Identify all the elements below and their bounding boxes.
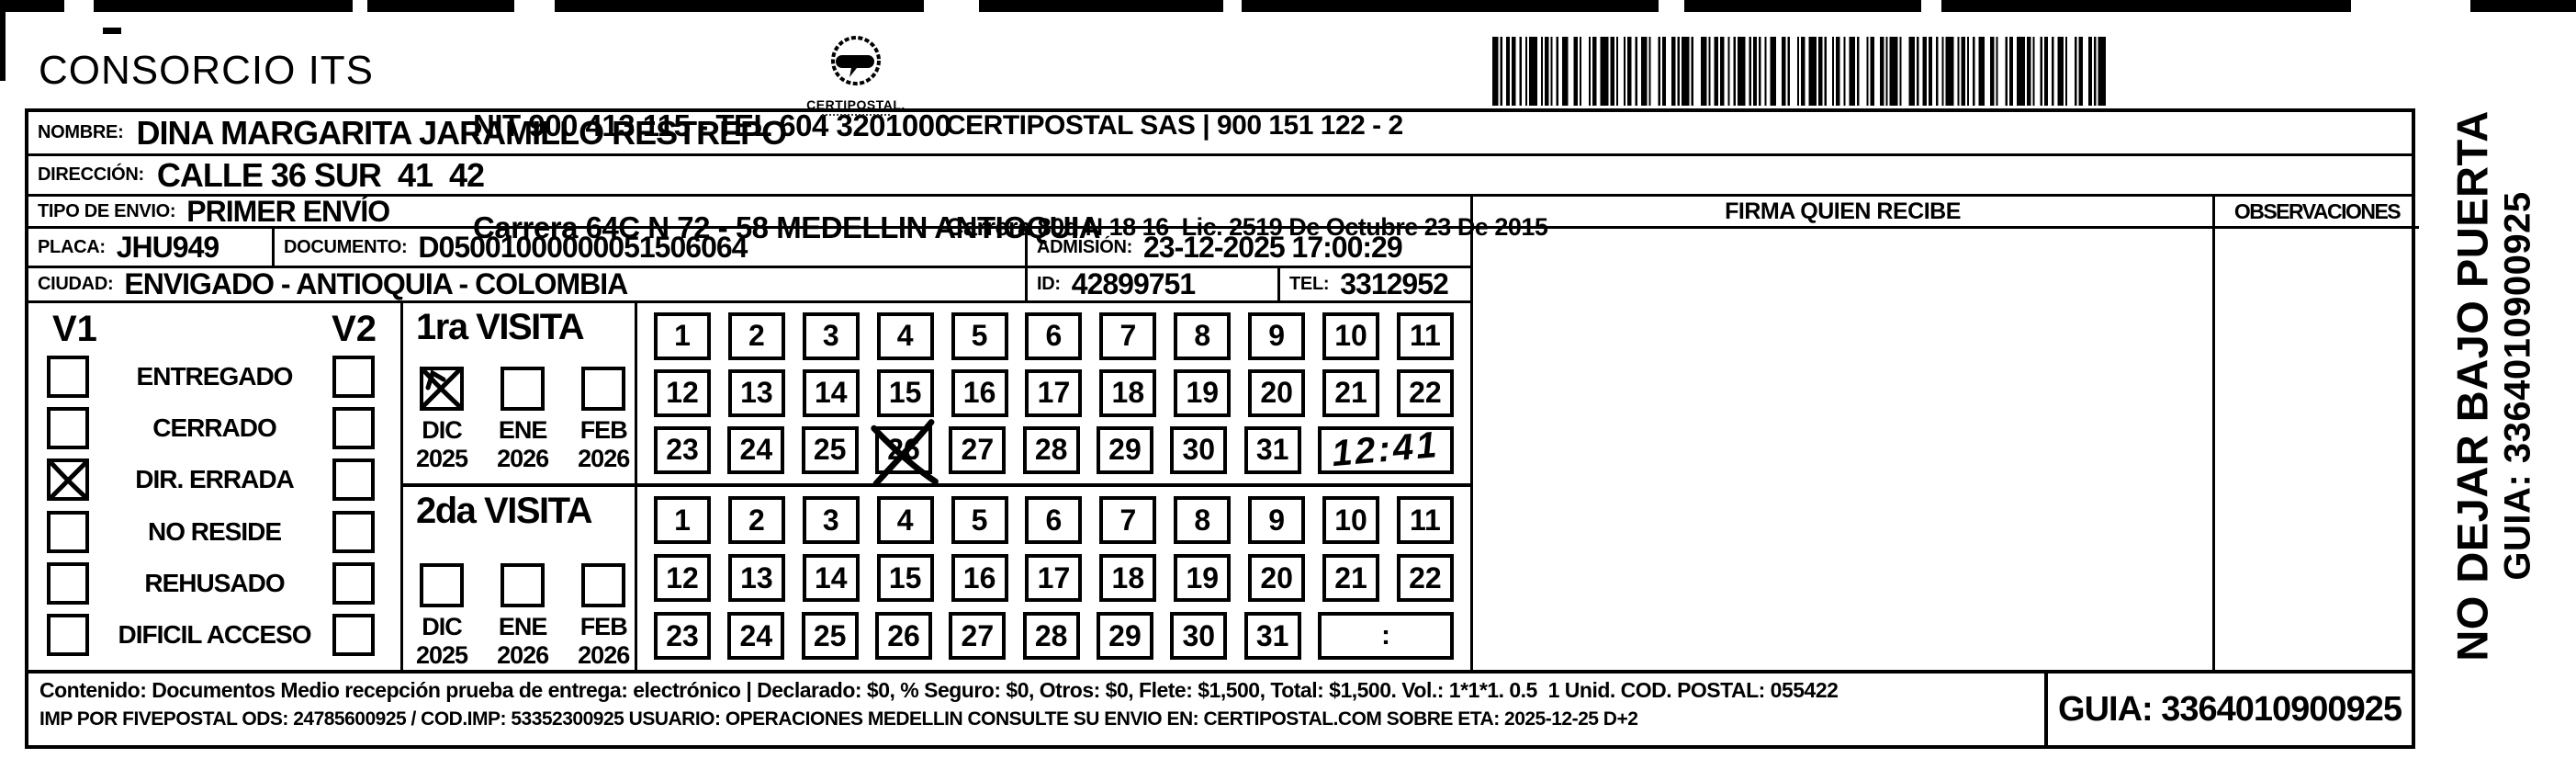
documento-label: DOCUMENTO: (284, 237, 407, 258)
day-cell: 29 (1097, 426, 1153, 474)
day-cell: 31 (1244, 612, 1301, 660)
day-cell: 18 (1099, 554, 1156, 602)
scan-artifact-top-bar (0, 0, 2576, 12)
direccion-label: DIRECCIÓN: (38, 164, 144, 186)
day-cell: 7 (1099, 312, 1156, 360)
ciudad-id-tel-row: CIUDAD: ENVIGADO - ANTIOQUIA - COLOMBIA … (28, 268, 1470, 303)
observaciones-header: OBSERVACIONES (2215, 197, 2419, 229)
day-row: 232425262728293031: (654, 612, 1454, 660)
day-cell: 20 (1248, 554, 1305, 602)
status-option-row: REHUSADO (38, 562, 391, 605)
scan-artifact-left-edge (0, 11, 6, 81)
day-cell: 21 (1322, 369, 1379, 417)
handwritten-x-icon (417, 364, 465, 412)
day-cell: 10 (1322, 312, 1379, 360)
form-body: NOMBRE: DINA MARGARITA JARAMILLO RESTREP… (25, 108, 2415, 673)
v2-column-label: V2 (332, 309, 377, 351)
visit-days-column: 1234567891011121314151617181920212223242… (637, 303, 1470, 670)
day-cell: 30 (1170, 426, 1227, 474)
day-cell: 20 (1248, 369, 1305, 417)
v2-checkbox (332, 356, 375, 398)
status-option-label: CERRADO (96, 413, 332, 443)
day-cell: 16 (951, 554, 1008, 602)
day-cell: 26 (875, 426, 932, 474)
day-cell: 9 (1248, 312, 1305, 360)
signature-panel: FIRMA QUIEN RECIBE (1473, 197, 2212, 670)
month-label: FEB (580, 613, 627, 641)
v1-checkbox (47, 511, 89, 553)
day-row: 23242526272829303112:41 (654, 426, 1454, 474)
day-cell: 6 (1025, 312, 1082, 360)
visit-time-box: : (1318, 612, 1454, 660)
recipient-name-row: NOMBRE: DINA MARGARITA JARAMILLO RESTREP… (28, 112, 2412, 156)
month-option: DIC2025 (416, 563, 467, 670)
day-cell: 25 (802, 426, 859, 474)
delivery-status-box: V1 V2 ENTREGADOCERRADODIR. ERRADANO RESI… (28, 303, 403, 670)
ciudad-value: ENVIGADO - ANTIOQUIA - COLOMBIA (124, 267, 627, 301)
day-cell: 19 (1174, 554, 1231, 602)
day-cell: 30 (1170, 612, 1227, 660)
handwritten-x-icon (44, 456, 92, 504)
day-cell: 27 (949, 612, 1006, 660)
v2-checkbox (332, 407, 375, 449)
time-placeholder: : (1381, 620, 1390, 651)
status-option-row: DIFICIL ACCESO (38, 614, 391, 656)
day-cell: 26 (875, 612, 932, 660)
month-checkbox (420, 367, 464, 411)
day-cell: 9 (1248, 496, 1305, 544)
day-cell: 12 (654, 554, 711, 602)
v2-checkbox (332, 614, 375, 656)
tipo-envio-label: TIPO DE ENVIO: (38, 201, 175, 222)
v1-checkbox (47, 407, 89, 449)
day-cell: 5 (951, 312, 1008, 360)
form-footer: Contenido: Documentos Medio recepción pr… (25, 673, 2415, 749)
month-checkbox (420, 563, 464, 607)
day-cell: 15 (877, 369, 934, 417)
status-option-row: DIR. ERRADA (38, 458, 391, 501)
day-cell: 24 (727, 426, 784, 474)
firma-header: FIRMA QUIEN RECIBE (1473, 197, 2212, 229)
day-cell: 14 (803, 369, 860, 417)
month-option: ENE2026 (497, 563, 548, 670)
certipostal-logo: CERTIPOSTAL. (801, 33, 911, 117)
direccion-value: CALLE 36 SUR 41 42 (157, 156, 484, 195)
day-cell: 28 (1023, 612, 1080, 660)
v1-checkbox (47, 562, 89, 605)
day-cell: 19 (1174, 369, 1231, 417)
tipo-envio-value: PRIMER ENVÍO (186, 195, 389, 229)
day-cell: 13 (728, 369, 785, 417)
day-cell: 22 (1397, 554, 1454, 602)
day-row: 1213141516171819202122 (654, 554, 1454, 602)
day-cell: 7 (1099, 496, 1156, 544)
footer-content-line: Contenido: Documentos Medio recepción pr… (39, 678, 2033, 703)
month-option: FEB2026 (578, 367, 629, 473)
visit-time-box: 12:41 (1318, 426, 1454, 474)
status-option-row: NO RESIDE (38, 511, 391, 553)
status-option-label: ENTREGADO (96, 362, 332, 391)
month-label: ENE (499, 416, 547, 445)
month-label: DIC (422, 416, 462, 445)
day-cell: 18 (1099, 369, 1156, 417)
v1-checkbox (47, 458, 89, 501)
footer-details: Contenido: Documentos Medio recepción pr… (28, 673, 2044, 745)
day-cell: 1 (654, 496, 711, 544)
day-cell: 3 (803, 496, 860, 544)
v1-checkbox (47, 614, 89, 656)
placa-label: PLACA: (38, 237, 106, 258)
scanned-delivery-form: CONSORCIO ITS NIT 900 413 115 - TEL 604 … (0, 0, 2576, 781)
day-cell: 13 (728, 554, 785, 602)
day-cell: 29 (1097, 612, 1153, 660)
day-cell: 4 (877, 312, 934, 360)
handwritten-time: 12:41 (1331, 424, 1442, 475)
visit-months-column: 1ra VISITA DIC2025ENE2026FEB2026 2da VIS… (403, 303, 637, 670)
v1-column-label: V1 (52, 309, 97, 351)
day-cell: 25 (802, 612, 859, 660)
day-cell: 8 (1174, 312, 1231, 360)
day-row: 1234567891011 (654, 312, 1454, 360)
day-cell: 11 (1397, 496, 1454, 544)
month-label: DIC (422, 613, 462, 641)
visit2-day-grid: 1234567891011121314151617181920212223242… (637, 487, 1470, 671)
tel-label: TEL: (1289, 274, 1329, 295)
month-year: 2025 (416, 641, 467, 670)
month-option: DIC2025 (416, 367, 467, 473)
day-cell: 2 (728, 312, 785, 360)
day-cell: 16 (951, 369, 1008, 417)
day-cell: 6 (1025, 496, 1082, 544)
month-year: 2026 (578, 445, 629, 473)
day-row: 1234567891011 (654, 496, 1454, 544)
day-cell: 15 (877, 554, 934, 602)
status-option-row: CERRADO (38, 407, 391, 449)
day-cell: 28 (1023, 426, 1080, 474)
shipment-type-row: TIPO DE ENVIO: PRIMER ENVÍO (28, 197, 1470, 229)
day-cell: 10 (1322, 496, 1379, 544)
side-guia-text: GUIA: 3364010900925 (2498, 110, 2539, 661)
admision-value: 23-12-2025 17:00:29 (1143, 231, 1402, 265)
shipment-details-column: TIPO DE ENVIO: PRIMER ENVÍO PLACA: JHU94… (28, 197, 1473, 670)
status-option-label: DIFICIL ACCESO (96, 620, 332, 650)
day-cell: 31 (1244, 426, 1301, 474)
day-cell: 2 (728, 496, 785, 544)
day-cell: 8 (1174, 496, 1231, 544)
status-options: ENTREGADOCERRADODIR. ERRADANO RESIDEREHU… (38, 351, 391, 661)
status-header: V1 V2 (38, 309, 391, 351)
visit2-months: 2da VISITA DIC2025ENE2026FEB2026 (403, 487, 635, 671)
v1-checkbox (47, 356, 89, 398)
scan-artifact-dash (103, 28, 121, 34)
nombre-value: DINA MARGARITA JARAMILLO RESTREPO (136, 114, 786, 153)
id-value: 42899751 (1072, 267, 1195, 301)
day-cell: 23 (654, 612, 711, 660)
day-cell: 11 (1397, 312, 1454, 360)
certipostal-logo-icon (827, 33, 885, 92)
visit1-title: 1ra VISITA (416, 307, 627, 348)
recipient-address-row: DIRECCIÓN: CALLE 36 SUR 41 42 (28, 156, 2412, 197)
ciudad-label: CIUDAD: (38, 274, 113, 295)
tel-value: 3312952 (1340, 267, 1448, 301)
day-cell: 23 (654, 426, 711, 474)
day-cell: 14 (803, 554, 860, 602)
visit1-month-checkboxes: DIC2025ENE2026FEB2026 (416, 367, 627, 473)
placa-value: JHU949 (117, 231, 219, 265)
day-cell: 24 (727, 612, 784, 660)
day-cell: 17 (1025, 554, 1082, 602)
month-label: ENE (499, 613, 547, 641)
handwritten-cross-icon (868, 417, 939, 491)
month-checkbox (501, 367, 545, 411)
admision-label: ADMISIÓN: (1037, 237, 1132, 258)
visits-section: V1 V2 ENTREGADOCERRADODIR. ERRADANO RESI… (28, 303, 1470, 670)
nombre-label: NOMBRE: (38, 122, 123, 143)
month-label: FEB (580, 416, 627, 445)
month-checkbox (501, 563, 545, 607)
documento-value: D05001000000051506064 (418, 231, 747, 265)
day-cell: 12 (654, 369, 711, 417)
month-checkbox (581, 367, 625, 411)
status-option-label: REHUSADO (96, 569, 332, 598)
month-option: FEB2026 (578, 563, 629, 670)
placa-documento-row: PLACA: JHU949 DOCUMENTO: D05001000000051… (28, 229, 1470, 268)
observations-panel: OBSERVACIONES (2212, 197, 2419, 670)
tracking-barcode (1492, 37, 2126, 106)
day-cell: 27 (949, 426, 1006, 474)
month-year: 2025 (416, 445, 467, 473)
v2-checkbox (332, 511, 375, 553)
no-dejar-bajo-puerta-text: NO DEJAR BAJO PUERTA (2447, 110, 2498, 661)
v2-checkbox (332, 458, 375, 501)
day-row: 1213141516171819202122 (654, 369, 1454, 417)
day-cell: 4 (877, 496, 934, 544)
month-option: ENE2026 (497, 367, 548, 473)
id-label: ID: (1037, 274, 1061, 295)
status-option-label: NO RESIDE (96, 517, 332, 547)
guia-number-box: GUIA: 3364010900925 (2044, 673, 2412, 745)
visit2-month-checkboxes: DIC2025ENE2026FEB2026 (416, 563, 627, 670)
month-checkbox (581, 563, 625, 607)
month-year: 2026 (497, 445, 548, 473)
day-cell: 21 (1322, 554, 1379, 602)
month-year: 2026 (578, 641, 629, 670)
v2-checkbox (332, 562, 375, 605)
visit1-day-grid: 1234567891011121314151617181920212223242… (637, 303, 1470, 487)
month-year: 2026 (497, 641, 548, 670)
status-option-label: DIR. ERRADA (96, 465, 332, 494)
visit2-title: 2da VISITA (416, 491, 627, 532)
side-vertical-text: NO DEJAR BAJO PUERTA GUIA: 3364010900925 (2408, 92, 2576, 680)
day-cell: 5 (951, 496, 1008, 544)
footer-imp-line: IMP POR FIVEPOSTAL ODS: 24785600925 / CO… (39, 708, 2033, 730)
day-cell: 3 (803, 312, 860, 360)
day-cell: 1 (654, 312, 711, 360)
day-cell: 17 (1025, 369, 1082, 417)
company-name: CONSORCIO ITS (39, 48, 374, 94)
day-cell: 22 (1397, 369, 1454, 417)
status-option-row: ENTREGADO (38, 356, 391, 398)
visit1-months: 1ra VISITA DIC2025ENE2026FEB2026 (403, 303, 635, 487)
